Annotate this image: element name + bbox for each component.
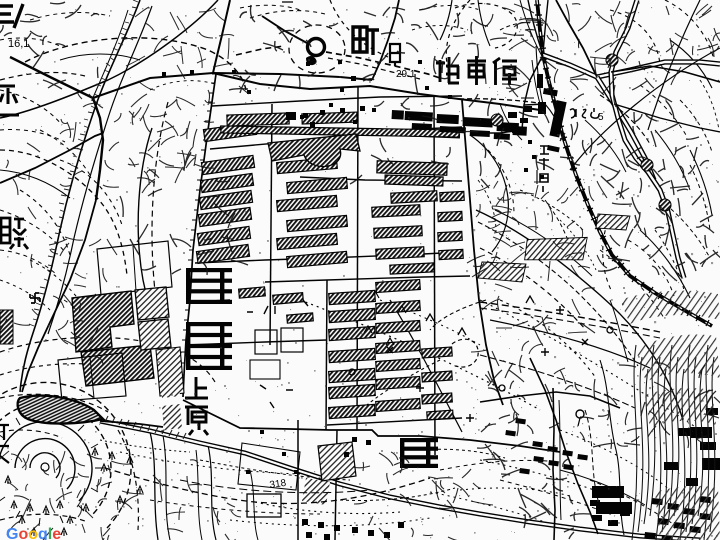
svg-text:Google: Google bbox=[6, 526, 61, 540]
svg-text:29.1: 29.1 bbox=[396, 69, 416, 80]
svg-text:5: 5 bbox=[598, 112, 604, 123]
